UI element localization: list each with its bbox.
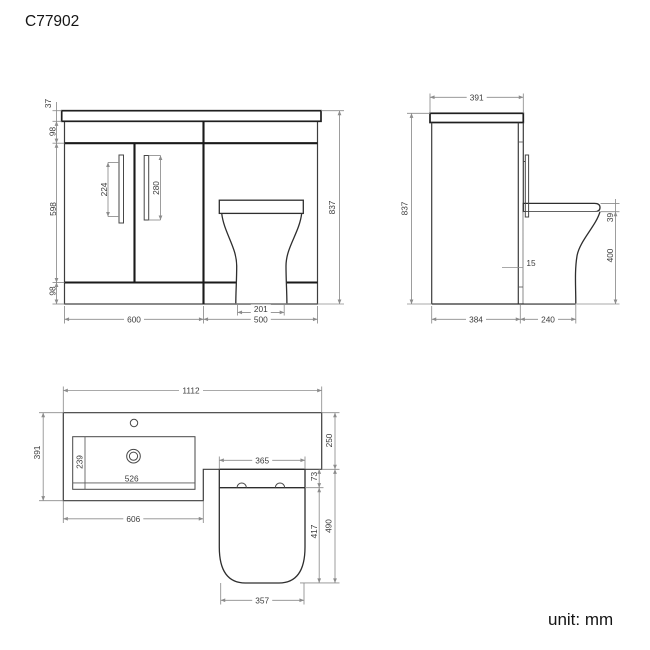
- dim-plan-seat-width: 365: [255, 455, 269, 465]
- dim-plan-wc-worktop-depth: 250: [324, 433, 334, 447]
- plan-seat-front-dimension: 357: [221, 583, 304, 605]
- dim-plan-basin-unit-width: 606: [126, 514, 140, 524]
- dim-plan-seat-hinge-depth: 73: [309, 472, 319, 482]
- front-height-dimension: 837: [318, 111, 345, 304]
- front-toilet-seat-block: [219, 200, 303, 213]
- dim-plan-total-width: 1112: [182, 386, 200, 396]
- dim-side-cabinet-depth: 384: [469, 314, 483, 324]
- technical-drawing: C77902 37: [0, 0, 650, 650]
- dim-side-worktop-depth: 391: [470, 92, 484, 102]
- dim-front-right-handle: 280: [151, 181, 161, 195]
- dim-plan-seat-length: 417: [309, 524, 319, 538]
- side-toilet-seat: [523, 203, 600, 211]
- dim-plan-bowl-width: 526: [125, 473, 139, 483]
- dim-side-pan-projection: 240: [541, 314, 555, 324]
- side-panel-gap-dimension: 15: [502, 258, 536, 268]
- plan-seat-depth-dimensions: 73 417: [305, 469, 324, 583]
- side-height-dimension: 837: [400, 113, 432, 304]
- front-right-door-handle: [144, 156, 149, 221]
- dim-front-left-handle: 224: [99, 182, 109, 196]
- dim-plan-worktop-depth: 391: [32, 445, 42, 459]
- front-left-door-handle: [119, 155, 124, 223]
- plan-toilet-seat: [219, 469, 305, 583]
- dim-front-total-height: 837: [327, 200, 337, 214]
- plan-view: 1112 391 239 526 606 250 490: [32, 386, 340, 606]
- dim-plan-wc-total-depth: 490: [324, 519, 334, 533]
- dim-front-plinth-height: 98: [47, 286, 57, 296]
- side-elevation-view: 391 837 39 400 15: [400, 92, 620, 324]
- dim-front-door-height: 598: [48, 202, 58, 216]
- dim-plan-bowl-depth: 239: [75, 455, 85, 469]
- drawing-code: C77902: [25, 13, 79, 30]
- dim-side-seat-thickness: 39: [605, 213, 615, 223]
- dim-plan-seat-front-width: 357: [255, 595, 269, 605]
- dim-side-total-height: 837: [400, 201, 410, 215]
- dim-front-vanity-width: 600: [127, 314, 141, 324]
- front-left-dimensions: 37 98 598 98: [43, 99, 65, 304]
- plan-tap-hole: [130, 419, 137, 426]
- side-worktop: [430, 113, 523, 122]
- unit-note: unit: mm: [548, 610, 613, 629]
- dim-front-top-rail-height: 98: [47, 127, 57, 137]
- plan-width-dimension: 1112: [63, 386, 321, 413]
- front-bottom-dimensions: 201 600 500: [65, 304, 318, 325]
- plan-depth-dimension: 391: [32, 413, 63, 501]
- side-bottom-dimensions: 384 240: [432, 305, 576, 324]
- dim-front-wc-unit-width: 500: [254, 314, 268, 324]
- dim-front-pan-base-width: 201: [254, 304, 268, 314]
- dim-side-pan-height: 400: [605, 248, 615, 262]
- front-elevation-view: 37 98 598 98 837 224 280: [43, 99, 344, 325]
- dim-side-back-panel-gap: 15: [526, 258, 536, 268]
- side-depth-dimension: 391: [430, 92, 523, 113]
- dim-front-worktop-thickness: 37: [43, 99, 53, 109]
- front-worktop: [62, 111, 321, 122]
- plan-basin-unit-dimension: 606: [63, 501, 203, 524]
- technical-drawing-page: C77902 37: [0, 0, 650, 650]
